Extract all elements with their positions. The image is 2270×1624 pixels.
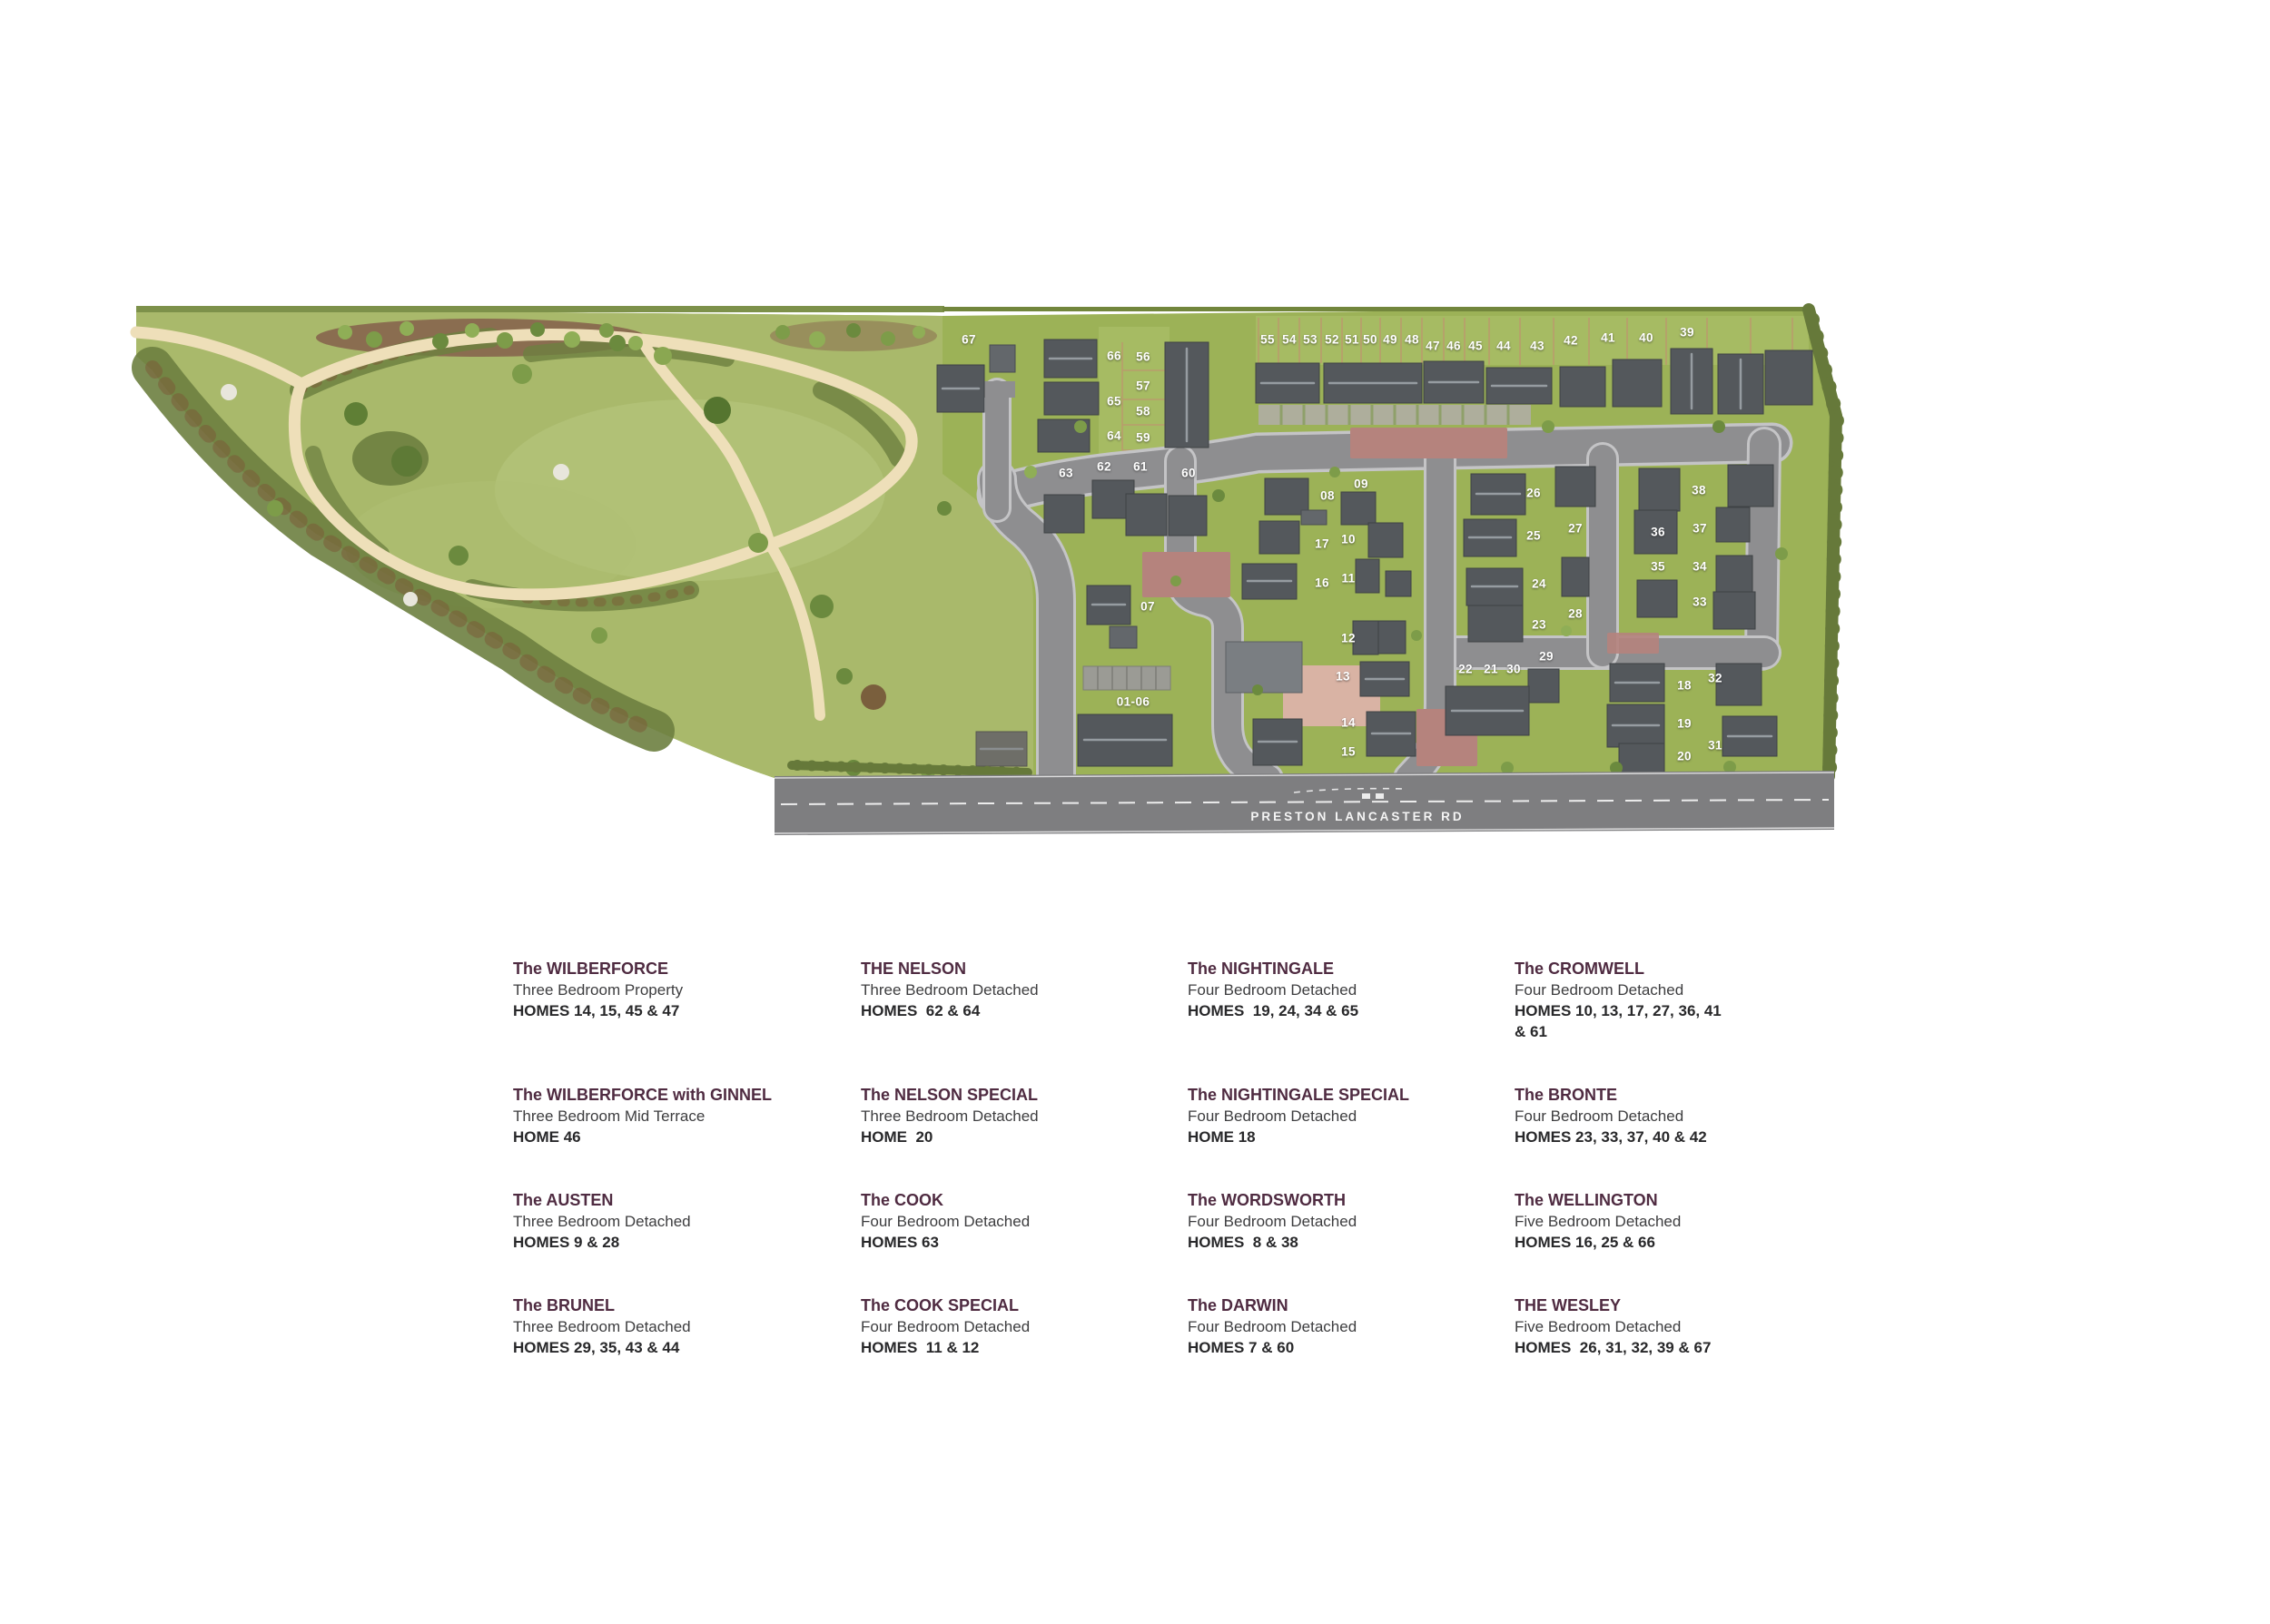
plot-number-47: 47: [1426, 340, 1440, 353]
house-type-name: The BRONTE: [1515, 1085, 1734, 1106]
plot-number-49: 49: [1383, 333, 1397, 347]
legend-entry-the-wilberforce-with-ginnel: The WILBERFORCE with GINNELThree Bedroom…: [513, 1085, 861, 1147]
plot-number-56: 56: [1136, 350, 1150, 364]
plot-number-30: 30: [1506, 663, 1521, 676]
legend-entry-the-wesley: THE WESLEYFive Bedroom DetachedHOMES 26,…: [1515, 1295, 1734, 1358]
plot-number-16: 16: [1315, 576, 1329, 590]
legend-entry-the-austen: The AUSTENThree Bedroom DetachedHOMES 9 …: [513, 1190, 861, 1253]
house-type-homes: HOME 46: [513, 1127, 861, 1147]
house-type-name: The WORDSWORTH: [1188, 1190, 1515, 1211]
plot-number-20: 20: [1677, 750, 1692, 763]
page: PRESTON LANCASTER RD 6766565765586459636…: [0, 0, 2270, 1624]
plot-number-10: 10: [1341, 533, 1356, 546]
house-type-name: The BRUNEL: [513, 1295, 861, 1316]
plot-number-55: 55: [1260, 333, 1275, 347]
house-type-description: Five Bedroom Detached: [1515, 1316, 1734, 1337]
plot-number-19: 19: [1677, 717, 1692, 731]
plot-number-38: 38: [1692, 484, 1706, 497]
house-type-description: Four Bedroom Detached: [1515, 1106, 1734, 1127]
house-type-homes: HOMES 9 & 28: [513, 1232, 861, 1253]
house-type-name: The NIGHTINGALE SPECIAL: [1188, 1085, 1515, 1106]
house-type-name: The COOK: [861, 1190, 1188, 1211]
plot-number-27: 27: [1568, 522, 1583, 536]
plot-number-34: 34: [1693, 560, 1707, 574]
house-type-homes: HOMES 7 & 60: [1188, 1337, 1515, 1358]
plot-number-54: 54: [1282, 333, 1297, 347]
legend-entry-the-wellington: The WELLINGTONFive Bedroom DetachedHOMES…: [1515, 1190, 1734, 1253]
plot-number-11: 11: [1341, 572, 1355, 586]
house-type-name: The NELSON SPECIAL: [861, 1085, 1188, 1106]
house-type-name: The CROMWELL: [1515, 959, 1734, 979]
plot-number-13: 13: [1336, 670, 1350, 684]
house-type-homes: HOMES 14, 15, 45 & 47: [513, 1000, 861, 1021]
house-type-homes: HOMES 23, 33, 37, 40 & 42: [1515, 1127, 1734, 1147]
house-type-homes: HOMES 62 & 64: [861, 1000, 1188, 1021]
plot-number-41: 41: [1601, 331, 1615, 345]
legend-entry-the-cromwell: The CROMWELLFour Bedroom DetachedHOMES 1…: [1515, 959, 1734, 1042]
plot-number-40: 40: [1639, 331, 1653, 345]
house-type-description: Three Bedroom Mid Terrace: [513, 1106, 861, 1127]
house-type-description: Four Bedroom Detached: [861, 1211, 1188, 1232]
plot-number-61: 61: [1133, 460, 1148, 474]
plot-number-29: 29: [1539, 650, 1554, 664]
house-type-homes: HOMES 26, 31, 32, 39 & 67: [1515, 1337, 1734, 1358]
plot-number-25: 25: [1526, 529, 1541, 543]
plot-number-65: 65: [1107, 395, 1121, 408]
plot-number-63: 63: [1059, 467, 1073, 480]
house-type-description: Four Bedroom Detached: [1188, 1106, 1515, 1127]
house-type-name: THE WESLEY: [1515, 1295, 1734, 1316]
legend-entry-the-wordsworth: The WORDSWORTHFour Bedroom DetachedHOMES…: [1188, 1190, 1515, 1253]
house-type-homes: HOMES 19, 24, 34 & 65: [1188, 1000, 1515, 1021]
plot-number-31: 31: [1708, 739, 1722, 753]
legend-entry-the-darwin: The DARWINFour Bedroom DetachedHOMES 7 &…: [1188, 1295, 1515, 1358]
plot-number-50: 50: [1363, 333, 1377, 347]
house-type-legend: The WILBERFORCEThree Bedroom PropertyHOM…: [513, 959, 1734, 1358]
house-type-name: The DARWIN: [1188, 1295, 1515, 1316]
plot-number-51: 51: [1345, 333, 1359, 347]
house-type-name: The COOK SPECIAL: [861, 1295, 1188, 1316]
plot-number-23: 23: [1532, 618, 1546, 632]
plot-number-24: 24: [1532, 577, 1546, 591]
house-type-name: The WELLINGTON: [1515, 1190, 1734, 1211]
plot-number-57: 57: [1136, 379, 1150, 393]
plot-number-39: 39: [1680, 326, 1694, 340]
plot-number-15: 15: [1341, 745, 1356, 759]
plot-number-01-06: 01-06: [1117, 695, 1150, 709]
house-type-description: Four Bedroom Detached: [1188, 979, 1515, 1000]
house-type-description: Three Bedroom Detached: [861, 979, 1188, 1000]
legend-entry-the-bronte: The BRONTEFour Bedroom DetachedHOMES 23,…: [1515, 1085, 1734, 1147]
house-type-name: THE NELSON: [861, 959, 1188, 979]
house-type-name: The WILBERFORCE with GINNEL: [513, 1085, 861, 1106]
house-type-description: Three Bedroom Detached: [513, 1211, 861, 1232]
plot-number-12: 12: [1341, 632, 1356, 645]
plot-number-08: 08: [1320, 489, 1335, 503]
house-type-description: Five Bedroom Detached: [1515, 1211, 1734, 1232]
plot-number-43: 43: [1530, 340, 1545, 353]
plot-number-48: 48: [1405, 333, 1419, 347]
house-type-homes: HOMES 16, 25 & 66: [1515, 1232, 1734, 1253]
house-type-description: Four Bedroom Detached: [861, 1316, 1188, 1337]
house-type-description: Three Bedroom Detached: [861, 1106, 1188, 1127]
plot-number-22: 22: [1458, 663, 1473, 676]
plot-number-36: 36: [1651, 526, 1665, 539]
house-type-description: Three Bedroom Detached: [513, 1316, 861, 1337]
plot-number-44: 44: [1496, 340, 1511, 353]
plot-number-07: 07: [1140, 600, 1155, 614]
plot-number-35: 35: [1651, 560, 1665, 574]
legend-entry-the-cook: The COOKFour Bedroom DetachedHOMES 63: [861, 1190, 1188, 1253]
house-type-description: Four Bedroom Detached: [1188, 1316, 1515, 1337]
house-type-name: The WILBERFORCE: [513, 959, 861, 979]
plot-number-26: 26: [1526, 487, 1541, 500]
house-type-description: Four Bedroom Detached: [1515, 979, 1734, 1000]
house-type-description: Three Bedroom Property: [513, 979, 861, 1000]
plot-number-33: 33: [1693, 595, 1707, 609]
house-type-description: Four Bedroom Detached: [1188, 1211, 1515, 1232]
legend-entry-the-nelson: THE NELSONThree Bedroom DetachedHOMES 62…: [861, 959, 1188, 1042]
plot-number-14: 14: [1341, 716, 1356, 730]
plot-labels-layer: 6766565765586459636261605554535251504948…: [0, 0, 2270, 835]
plot-number-45: 45: [1468, 340, 1483, 353]
plot-number-59: 59: [1136, 431, 1150, 445]
house-type-name: The NIGHTINGALE: [1188, 959, 1515, 979]
plot-number-37: 37: [1693, 522, 1707, 536]
plot-number-64: 64: [1107, 429, 1121, 443]
house-type-name: The AUSTEN: [513, 1190, 861, 1211]
plot-number-17: 17: [1315, 537, 1329, 551]
plot-number-21: 21: [1484, 663, 1498, 676]
plot-number-60: 60: [1181, 467, 1196, 480]
plot-number-32: 32: [1708, 672, 1722, 685]
legend-entry-the-wilberforce: The WILBERFORCEThree Bedroom PropertyHOM…: [513, 959, 861, 1042]
plot-number-18: 18: [1677, 679, 1692, 693]
legend-entry-the-nightingale: The NIGHTINGALEFour Bedroom DetachedHOME…: [1188, 959, 1515, 1042]
house-type-homes: HOMES 11 & 12: [861, 1337, 1188, 1358]
house-type-homes: HOME 20: [861, 1127, 1188, 1147]
house-type-homes: HOMES 29, 35, 43 & 44: [513, 1337, 861, 1358]
plot-number-66: 66: [1107, 349, 1121, 363]
legend-entry-the-brunel: The BRUNELThree Bedroom DetachedHOMES 29…: [513, 1295, 861, 1358]
plot-number-52: 52: [1325, 333, 1339, 347]
legend-entry-the-cook-special: The COOK SPECIALFour Bedroom DetachedHOM…: [861, 1295, 1188, 1358]
plot-number-46: 46: [1446, 340, 1461, 353]
house-type-homes: HOMES 10, 13, 17, 27, 36, 41 & 61: [1515, 1000, 1734, 1042]
house-type-homes: HOME 18: [1188, 1127, 1515, 1147]
plot-number-67: 67: [962, 333, 976, 347]
plot-number-42: 42: [1564, 334, 1578, 348]
plot-number-62: 62: [1097, 460, 1111, 474]
legend-entry-the-nelson-special: The NELSON SPECIALThree Bedroom Detached…: [861, 1085, 1188, 1147]
house-type-homes: HOMES 63: [861, 1232, 1188, 1253]
plot-number-28: 28: [1568, 607, 1583, 621]
legend-entry-the-nightingale-special: The NIGHTINGALE SPECIALFour Bedroom Deta…: [1188, 1085, 1515, 1147]
plot-number-58: 58: [1136, 405, 1150, 418]
house-type-homes: HOMES 8 & 38: [1188, 1232, 1515, 1253]
plot-number-53: 53: [1303, 333, 1318, 347]
plot-number-09: 09: [1354, 477, 1368, 491]
